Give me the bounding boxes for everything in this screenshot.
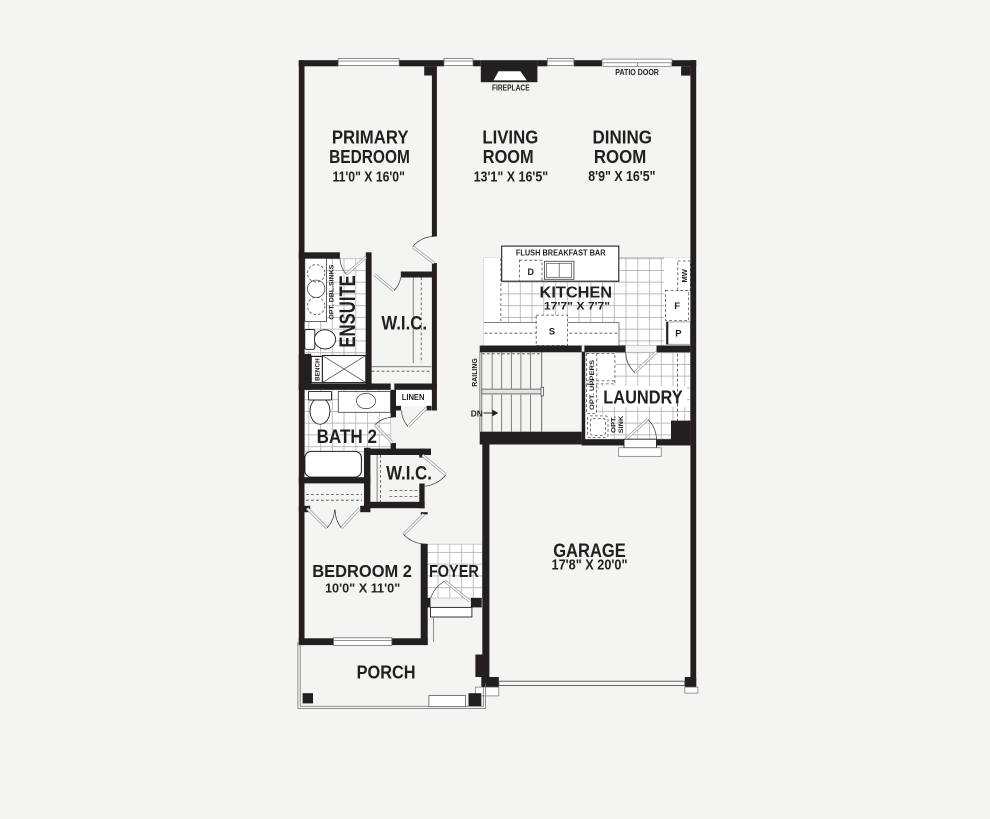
svg-text:17'7" X 7'7": 17'7" X 7'7" [544, 300, 610, 312]
svg-text:8'9" X 16'5": 8'9" X 16'5" [588, 169, 655, 185]
svg-text:OPT. UPPERS: OPT. UPPERS [589, 359, 596, 410]
svg-text:BENCH: BENCH [314, 358, 321, 381]
svg-text:ROOM: ROOM [483, 147, 534, 167]
svg-text:PRIMARY: PRIMARY [332, 128, 409, 148]
svg-text:S: S [549, 327, 555, 338]
svg-text:SINK: SINK [618, 415, 625, 433]
svg-text:LIVING: LIVING [482, 128, 538, 148]
svg-text:D: D [527, 267, 534, 277]
svg-text:OPT.: OPT. [610, 416, 617, 433]
svg-text:MW: MW [680, 268, 689, 282]
svg-text:PATIO DOOR: PATIO DOOR [615, 68, 659, 77]
svg-text:BEDROOM 2: BEDROOM 2 [312, 561, 412, 581]
svg-text:F: F [674, 301, 680, 312]
svg-text:10'0" X 11'0": 10'0" X 11'0" [325, 581, 400, 596]
svg-text:11'0" X 16'0": 11'0" X 16'0" [333, 169, 405, 185]
svg-text:RAILING: RAILING [470, 358, 479, 387]
svg-text:BATH 2: BATH 2 [317, 426, 378, 448]
svg-text:W.I.C.: W.I.C. [386, 464, 432, 485]
svg-text:FOYER: FOYER [429, 561, 479, 581]
svg-text:FIREPLACE: FIREPLACE [492, 84, 530, 93]
svg-text:FLUSH BREAKFAST BAR: FLUSH BREAKFAST BAR [516, 248, 606, 258]
svg-text:P: P [675, 329, 682, 340]
svg-text:ROOM: ROOM [594, 147, 646, 167]
svg-text:13'1" X 16'5": 13'1" X 16'5" [474, 169, 549, 185]
svg-text:KITCHEN: KITCHEN [540, 285, 613, 302]
svg-text:DINING: DINING [593, 127, 652, 147]
svg-text:17'8" X 20'0": 17'8" X 20'0" [552, 558, 628, 574]
svg-text:LAUNDRY: LAUNDRY [603, 386, 683, 407]
svg-text:OPT. DBL.SINKS: OPT. DBL.SINKS [329, 264, 336, 320]
svg-text:LINEN: LINEN [402, 392, 425, 402]
svg-text:DN: DN [471, 409, 483, 419]
svg-text:BEDROOM: BEDROOM [329, 147, 410, 167]
svg-text:PORCH: PORCH [357, 662, 416, 683]
svg-text:W.I.C.: W.I.C. [381, 313, 427, 334]
svg-text:ENSUITE: ENSUITE [335, 275, 360, 347]
